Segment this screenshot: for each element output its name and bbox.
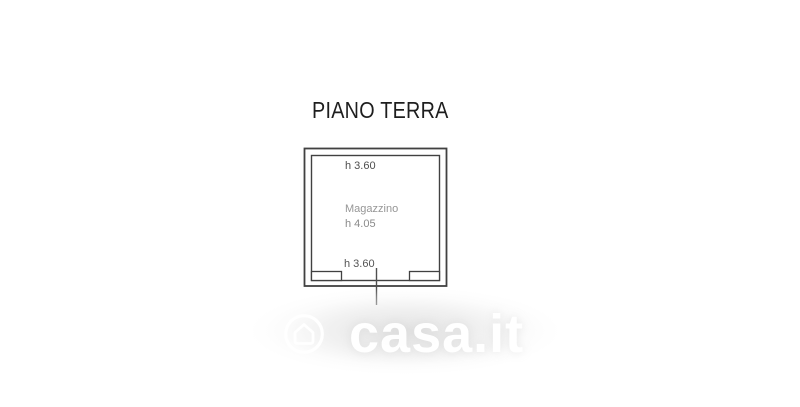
bottom-wall-height-label: h 3.60 (344, 259, 375, 270)
room-name-label: Magazzino (345, 204, 398, 215)
watermark-brand-text: casa.it (349, 307, 524, 361)
top-wall-height-label: h 3.60 (345, 161, 376, 172)
floorplan-page: PIANO TERRA h 3.60 Magazzino h 4.05 h 3.… (0, 0, 800, 407)
watermark: casa.it (235, 282, 575, 386)
left-jamb-block (312, 272, 342, 281)
casa-house-circle-icon (283, 313, 325, 355)
room-height-label: h 4.05 (345, 219, 376, 230)
right-jamb-block (410, 272, 440, 281)
